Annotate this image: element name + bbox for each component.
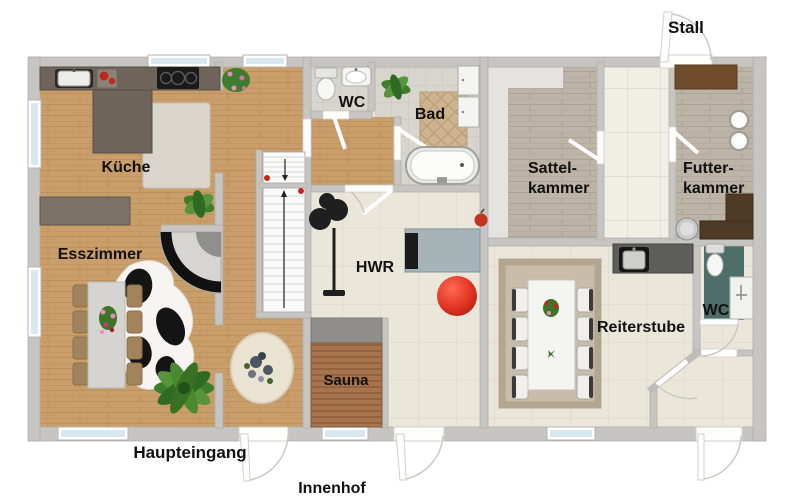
label-innenhof: Innenhof <box>298 480 366 497</box>
window <box>28 100 41 168</box>
washbasin-unit <box>730 277 753 319</box>
bath-shelf <box>458 97 479 127</box>
wall-outer-top <box>30 57 766 67</box>
door-innenhof-1 <box>394 427 444 480</box>
wall-treppe-sued <box>256 312 311 318</box>
reiterstube-counter-sink <box>613 244 693 273</box>
wall-mid-east <box>480 57 488 428</box>
label-stall: Stall <box>668 18 704 37</box>
toilet <box>315 68 337 100</box>
window <box>58 427 128 440</box>
feed-bin <box>730 111 748 129</box>
wall-outer-right <box>753 57 766 441</box>
sideboard <box>40 197 130 225</box>
opening-flur-klein <box>303 119 311 157</box>
feed-bin <box>730 132 748 150</box>
kitchen-red-appliance <box>97 69 117 88</box>
label-hwr: HWR <box>356 259 395 276</box>
wall-esszimmer-flur <box>215 373 223 428</box>
window <box>148 55 210 67</box>
washbasin <box>342 67 371 86</box>
round-rug <box>231 333 293 403</box>
floorplan-canvas: Küche Esszimmer WC Bad HWR Sauna Sattel-… <box>0 0 800 497</box>
label-kueche: Küche <box>102 159 151 176</box>
toilet <box>706 244 724 276</box>
stairs-marker-dot <box>298 188 304 194</box>
red-gym-ball <box>437 276 477 316</box>
kitchen-sink <box>55 69 93 88</box>
window <box>28 267 41 337</box>
label-wc-stall: WC <box>703 302 730 319</box>
window <box>547 427 595 440</box>
label-reiterstube: Reiterstube <box>597 319 685 336</box>
kitchen-rug <box>143 103 210 188</box>
label-wc-haus: WC <box>339 94 366 111</box>
bucket <box>676 218 698 240</box>
sauna-bench <box>311 318 382 343</box>
wall-kamin-nische <box>161 225 223 232</box>
cooktop <box>157 67 199 89</box>
label-haupteingang: Haupteingang <box>133 443 246 462</box>
wall-treppe-west <box>256 150 262 318</box>
opening-hwr <box>345 185 393 192</box>
bathtub-faucet <box>437 177 447 183</box>
label-sattelkammer-2: kammer <box>528 180 589 197</box>
wood-bench <box>675 65 737 89</box>
kitchen-counter-leg <box>93 90 152 153</box>
reiterstube-table <box>528 280 575 390</box>
window <box>243 55 287 67</box>
plant-flur-top <box>222 68 250 92</box>
dining-table <box>88 282 125 388</box>
label-sattelkammer-1: Sattel- <box>528 160 577 177</box>
door-innenhof-2 <box>696 427 742 480</box>
window <box>322 427 368 440</box>
bathtub <box>406 147 479 184</box>
door-leaf-wc-stall <box>700 319 738 325</box>
wall-sauna-ost <box>382 318 388 428</box>
staircase <box>263 152 305 312</box>
label-bad: Bad <box>415 106 445 123</box>
corner-counter <box>700 221 753 239</box>
stairs-marker-dot <box>264 175 270 181</box>
label-futterkammer-2: kammer <box>683 180 744 197</box>
label-futterkammer-1: Futter- <box>683 160 734 177</box>
label-esszimmer: Esszimmer <box>58 246 143 263</box>
floorplan-page: Küche Esszimmer WC Bad HWR Sauna Sattel-… <box>0 0 800 497</box>
stallgasse-floor <box>604 62 669 238</box>
washing-machine <box>405 229 480 272</box>
bath-shelf <box>458 66 479 95</box>
wall-reiterstube-ost <box>693 246 700 352</box>
sattelkammer-shelf-strip <box>488 62 508 238</box>
room-flur-klein-floor <box>311 117 394 185</box>
wall-hwr-nord <box>311 185 480 192</box>
label-sauna: Sauna <box>323 372 369 389</box>
